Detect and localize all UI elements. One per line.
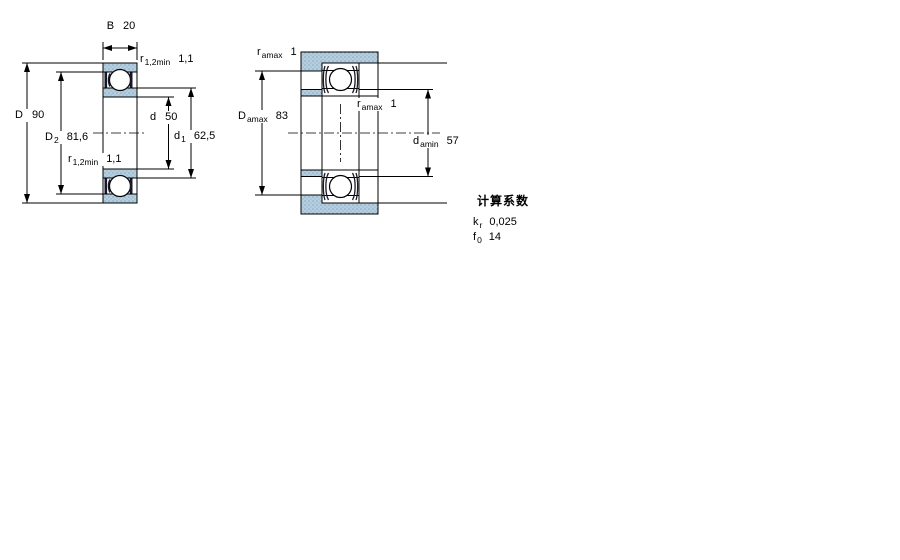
dim-label-shoulder-diameter-d1: d162,5 — [173, 130, 216, 143]
ball-top — [110, 70, 131, 91]
dim-label-bore-diameter-d: d50 — [149, 111, 178, 124]
dim-label-fillet-ra-top: ramax1 — [256, 46, 298, 59]
calculation-factors-block: 计算系数 kr0,025 f014 — [473, 194, 529, 244]
ball-bottom — [110, 176, 131, 197]
calculation-factors-heading: 计算系数 — [477, 194, 529, 208]
technical-drawing — [0, 0, 900, 560]
dim-label-recess-diameter-D2: D281,6 — [44, 131, 89, 144]
shaft-shoulder-top — [301, 90, 322, 97]
dim-label-width-B: B20 — [103, 20, 139, 33]
factor-f0: f014 — [473, 230, 529, 244]
dim-label-fillet-ra-mid: ramax1 — [356, 98, 398, 111]
factor-kr: kr0,025 — [473, 215, 529, 229]
dim-label-chamfer-r-top: r1,2min1,1 — [139, 53, 194, 66]
ball-top-right — [330, 69, 352, 91]
dim-label-chamfer-r-bottom: r1,2min1,1 — [67, 153, 122, 166]
dimension-B — [103, 42, 137, 60]
ball-bottom-right — [330, 176, 352, 198]
right-mounting-view — [255, 52, 447, 214]
shaft-shoulder-bottom — [301, 170, 322, 177]
dim-label-housing-diameter-Damax: Damax83 — [237, 110, 289, 123]
dim-label-outer-diameter-D: D90 — [14, 109, 45, 122]
bearing-drawing-page: B20 r1,2min1,1 D90 D281,6 d50 d162,5 r1,… — [0, 0, 900, 560]
dim-label-shaft-diameter-damin: damin57 — [412, 135, 460, 148]
